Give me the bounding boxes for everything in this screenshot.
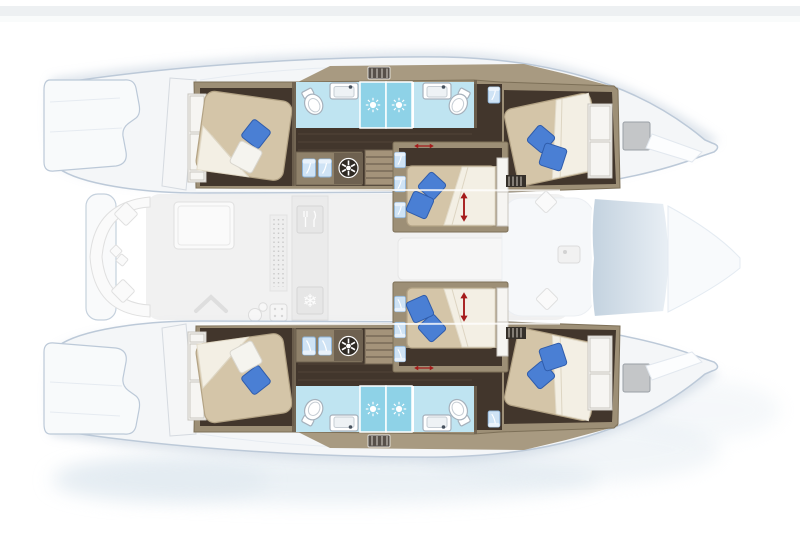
forward-lounge <box>502 191 594 316</box>
washbasin-icon <box>330 83 358 99</box>
locker-icon <box>303 159 316 177</box>
mid-cabin <box>393 142 508 232</box>
deck-grille <box>368 67 390 79</box>
locker-icon <box>394 202 405 217</box>
forward-closet <box>588 104 612 178</box>
floor-plan-canvas: ❄ <box>0 0 800 533</box>
background-band-soft <box>0 16 800 22</box>
bow-hatch <box>623 122 650 150</box>
dinette-counter <box>398 238 506 280</box>
snowflake-icon: ❄ <box>302 291 317 312</box>
background-band <box>0 6 800 16</box>
coachroof-glass-panel <box>592 198 669 317</box>
locker-icon <box>488 87 500 103</box>
washing-machine-icon <box>339 159 358 178</box>
service-row <box>296 150 396 185</box>
locker-icon <box>319 159 332 177</box>
locker-icon <box>394 152 405 167</box>
transom-platform <box>44 80 140 171</box>
galley-cutlery-station <box>297 206 323 233</box>
inboard-trim <box>196 190 560 191</box>
vent-grille <box>506 175 526 187</box>
lounge-table <box>558 246 580 263</box>
companion-door-strip <box>270 215 287 291</box>
cabin-partition <box>292 82 296 186</box>
washbasin-icon <box>423 83 451 99</box>
aft-cabin <box>188 90 293 182</box>
shower-sun-icon <box>392 98 406 112</box>
bathrooms <box>296 80 477 128</box>
cockpit-table <box>174 202 234 249</box>
companionway-stairs <box>365 150 396 185</box>
fridge-snowflake-station: ❄ <box>297 287 323 314</box>
shower-sun-icon <box>366 98 380 112</box>
foredeck <box>668 206 740 312</box>
floor-plan-page: ❄ <box>0 0 800 533</box>
cooktop <box>270 304 287 321</box>
